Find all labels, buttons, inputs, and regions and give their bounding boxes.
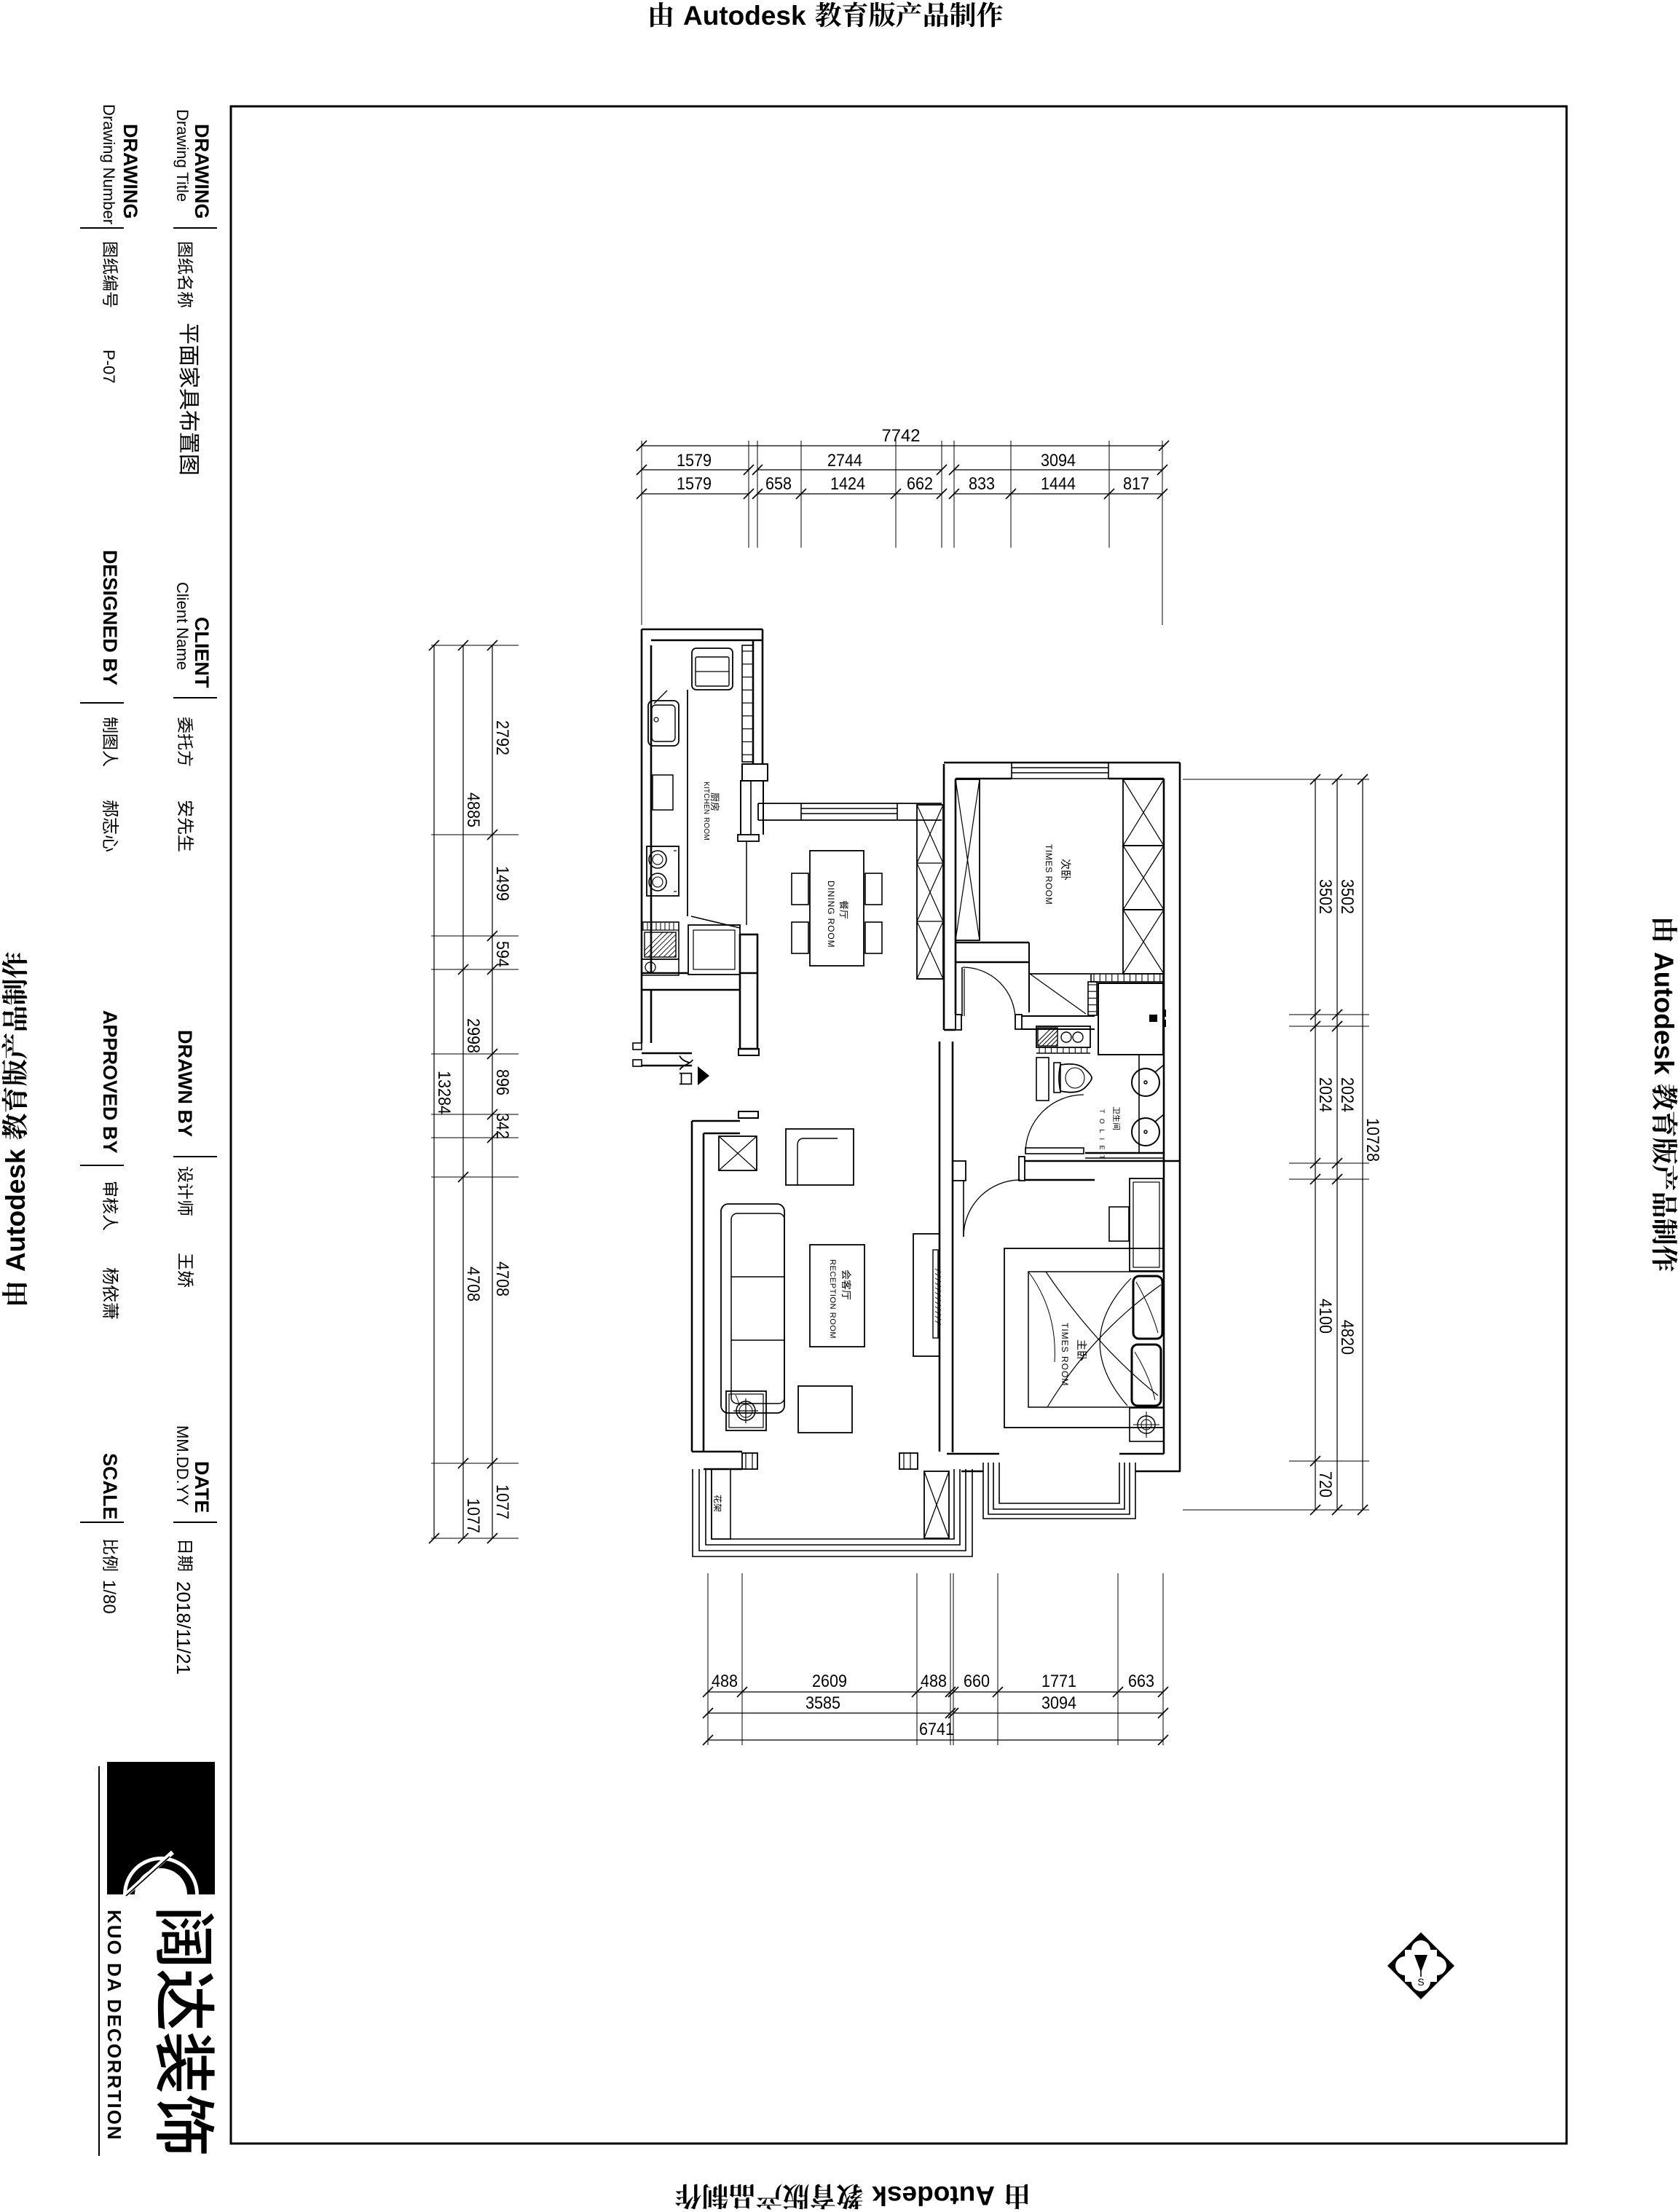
svg-text:DRAWING: DRAWING bbox=[191, 124, 213, 219]
svg-text:720: 720 bbox=[1315, 1471, 1335, 1497]
svg-text:342: 342 bbox=[492, 1113, 512, 1139]
svg-text:833: 833 bbox=[969, 474, 995, 494]
svg-text:MM.DD.YY: MM.DD.YY bbox=[173, 1425, 192, 1506]
svg-text:2609: 2609 bbox=[812, 1672, 847, 1691]
svg-text:662: 662 bbox=[907, 474, 933, 494]
svg-text:488: 488 bbox=[921, 1672, 947, 1691]
svg-text:DRAWING: DRAWING bbox=[119, 124, 141, 219]
svg-text:2998: 2998 bbox=[463, 1018, 483, 1053]
svg-text:4708: 4708 bbox=[492, 1262, 512, 1296]
svg-text:Autodesk: Autodesk bbox=[1649, 952, 1678, 1075]
svg-text:1579: 1579 bbox=[677, 451, 712, 471]
svg-text:DATE: DATE bbox=[191, 1461, 213, 1514]
svg-text:S: S bbox=[1417, 1976, 1424, 1988]
svg-text:APPROVED BY: APPROVED BY bbox=[99, 1010, 121, 1154]
svg-text:ROOM: ROOM bbox=[702, 817, 710, 841]
svg-text:Drawing Title: Drawing Title bbox=[173, 109, 192, 202]
svg-text:1077: 1077 bbox=[492, 1484, 512, 1519]
svg-text:2018/11/21: 2018/11/21 bbox=[173, 1581, 194, 1674]
svg-text:3502: 3502 bbox=[1337, 879, 1357, 914]
svg-text:7742: 7742 bbox=[882, 426, 921, 446]
svg-text:4100: 4100 bbox=[1315, 1299, 1335, 1334]
svg-text:Drawing Number: Drawing Number bbox=[100, 104, 118, 224]
svg-text:CLIENT: CLIENT bbox=[191, 617, 213, 688]
svg-text:Client Name: Client Name bbox=[173, 582, 192, 670]
svg-text:DINING ROOM: DINING ROOM bbox=[826, 881, 836, 948]
svg-text:817: 817 bbox=[1123, 474, 1149, 494]
svg-text:3094: 3094 bbox=[1041, 1693, 1076, 1713]
svg-text:4820: 4820 bbox=[1337, 1320, 1357, 1355]
svg-text:SCALE: SCALE bbox=[99, 1453, 121, 1520]
svg-text:2024: 2024 bbox=[1315, 1077, 1335, 1112]
svg-text:DRAWN BY: DRAWN BY bbox=[174, 1030, 196, 1137]
svg-text:663: 663 bbox=[1128, 1672, 1154, 1691]
svg-text:P-07: P-07 bbox=[100, 350, 118, 383]
svg-text:2792: 2792 bbox=[492, 720, 512, 755]
svg-text:1499: 1499 bbox=[492, 866, 512, 901]
svg-text:1771: 1771 bbox=[1041, 1672, 1076, 1691]
svg-text:KITCHEN: KITCHEN bbox=[702, 782, 710, 814]
svg-text:TIMES ROOM: TIMES ROOM bbox=[1060, 1323, 1070, 1386]
svg-text:Autodesk: Autodesk bbox=[1, 1149, 31, 1272]
svg-text:658: 658 bbox=[765, 474, 792, 494]
svg-text:Autodesk: Autodesk bbox=[683, 1, 806, 31]
svg-text:4885: 4885 bbox=[463, 792, 483, 827]
svg-text:488: 488 bbox=[712, 1672, 738, 1691]
svg-text:1077: 1077 bbox=[463, 1498, 483, 1533]
svg-text:2024: 2024 bbox=[1337, 1077, 1357, 1112]
svg-text:4708: 4708 bbox=[463, 1267, 483, 1302]
svg-text:13284: 13284 bbox=[434, 1071, 454, 1114]
svg-text:2744: 2744 bbox=[827, 451, 862, 471]
svg-text:KUO DA DECORRTION: KUO DA DECORRTION bbox=[103, 1910, 125, 2141]
svg-text:1579: 1579 bbox=[677, 474, 712, 494]
svg-text:594: 594 bbox=[492, 941, 512, 967]
svg-text:DESIGNED BY: DESIGNED BY bbox=[99, 550, 121, 685]
svg-text:3094: 3094 bbox=[1041, 451, 1076, 471]
svg-text:1424: 1424 bbox=[830, 474, 865, 494]
svg-text:1/80: 1/80 bbox=[99, 1580, 119, 1614]
svg-text:T O L I E T: T O L I E T bbox=[1098, 1109, 1106, 1161]
svg-text:660: 660 bbox=[964, 1672, 990, 1691]
svg-text:10728: 10728 bbox=[1363, 1118, 1382, 1162]
svg-text:TIMES ROOM: TIMES ROOM bbox=[1044, 844, 1054, 905]
svg-text:3502: 3502 bbox=[1315, 879, 1335, 914]
svg-text:3585: 3585 bbox=[805, 1693, 840, 1713]
svg-text:1444: 1444 bbox=[1041, 474, 1076, 494]
svg-text:6741: 6741 bbox=[919, 1720, 954, 1739]
svg-text:896: 896 bbox=[492, 1069, 512, 1095]
svg-text:RECEPTION ROOM: RECEPTION ROOM bbox=[828, 1259, 837, 1339]
svg-text:Autodesk: Autodesk bbox=[872, 2181, 995, 2211]
